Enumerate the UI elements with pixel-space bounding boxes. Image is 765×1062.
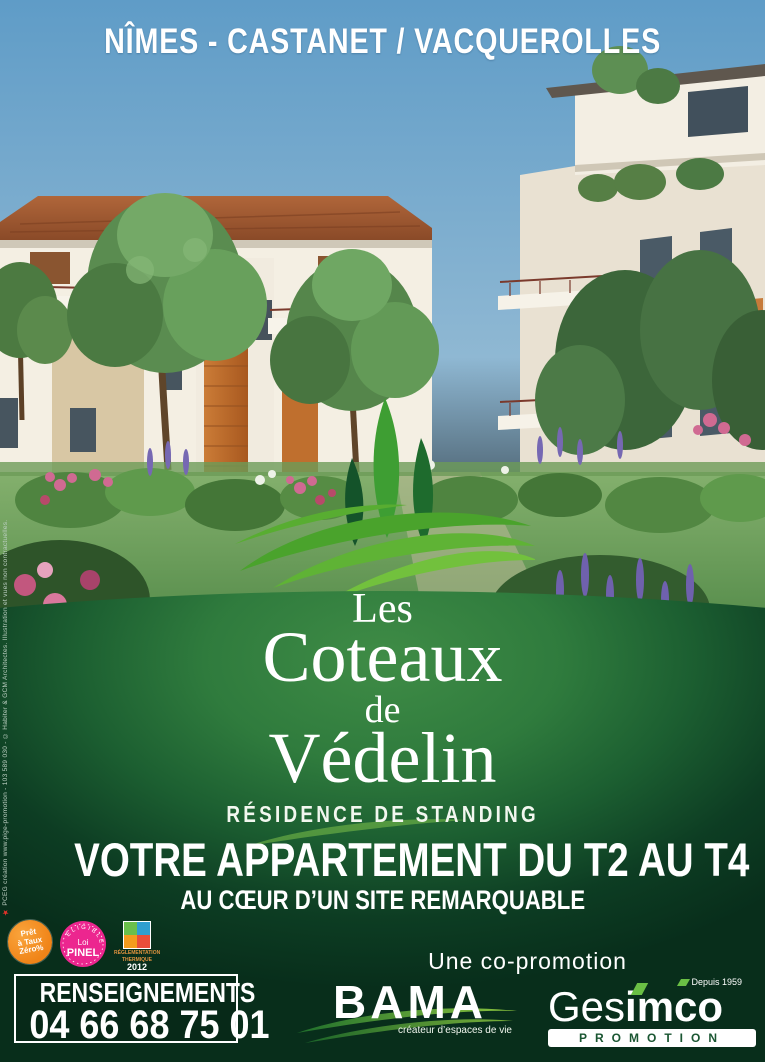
brand-coteaux: Coteaux [0, 626, 765, 689]
poster-root: NÎMES - CASTANET / VACQUEROLLES Les Cote… [0, 0, 765, 1062]
headline-sub: AU CŒUR D’UN SITE REMARQUABLE [0, 887, 765, 914]
pinel-badge: ÉLIGIBLE Loi PINEL [59, 920, 107, 968]
rt2012-logo-icon [123, 921, 151, 949]
residence-brand: Les Coteaux de Védelin RÉSIDENCE DE STAN… [0, 588, 765, 828]
brand-subtitle: RÉSIDENCE DE STANDING [0, 801, 765, 828]
ptz-badge: Prêt à Taux Zéro% [5, 917, 56, 968]
contact-box: RENSEIGNEMENTS 04 66 68 75 01 [14, 974, 238, 1043]
headline-block: VOTRE APPARTEMENT DU T2 AU T4 AU CŒUR D’… [0, 836, 765, 914]
bama-logo: BAMA créateur d’espaces de vie [295, 977, 520, 1047]
bama-tagline: créateur d’espaces de vie [398, 1025, 512, 1036]
headline-main: VOTRE APPARTEMENT DU T2 AU T4 [0, 836, 765, 883]
brand-vedelin: Védelin [0, 725, 765, 791]
copromotion-label: Une co-promotion [295, 948, 760, 975]
copromotion-block: Une co-promotion BAMA créateur d’espaces… [295, 948, 760, 1047]
legal-star-icon: ★ [1, 908, 10, 917]
rt2012-badge: RÉGLEMENTATION THERMIQUE 2012 [114, 920, 160, 972]
legal-credits-vertical: ★ PCEG création www.pige-promotion - 103… [1, 622, 10, 917]
gesimco-logo: Depuis 1959 Gesimco PROMOTION [548, 977, 760, 1047]
svg-text:Loi: Loi [78, 938, 89, 947]
contact-phone-number: 04 66 68 75 01 [16, 1007, 236, 1044]
location-banner-text: NÎMES - CASTANET / VACQUEROLLES [104, 22, 661, 62]
svg-text:PINEL: PINEL [67, 947, 100, 959]
eligibility-badges: Prêt à Taux Zéro% ÉLIGIBLE Loi PINEL RÉG… [8, 920, 160, 972]
bama-name: BAMA [333, 979, 487, 1025]
leaf-logo-icon [235, 386, 535, 604]
gesimco-promotion-banner: PROMOTION [548, 1029, 756, 1047]
location-banner: NÎMES - CASTANET / VACQUEROLLES [0, 22, 765, 62]
